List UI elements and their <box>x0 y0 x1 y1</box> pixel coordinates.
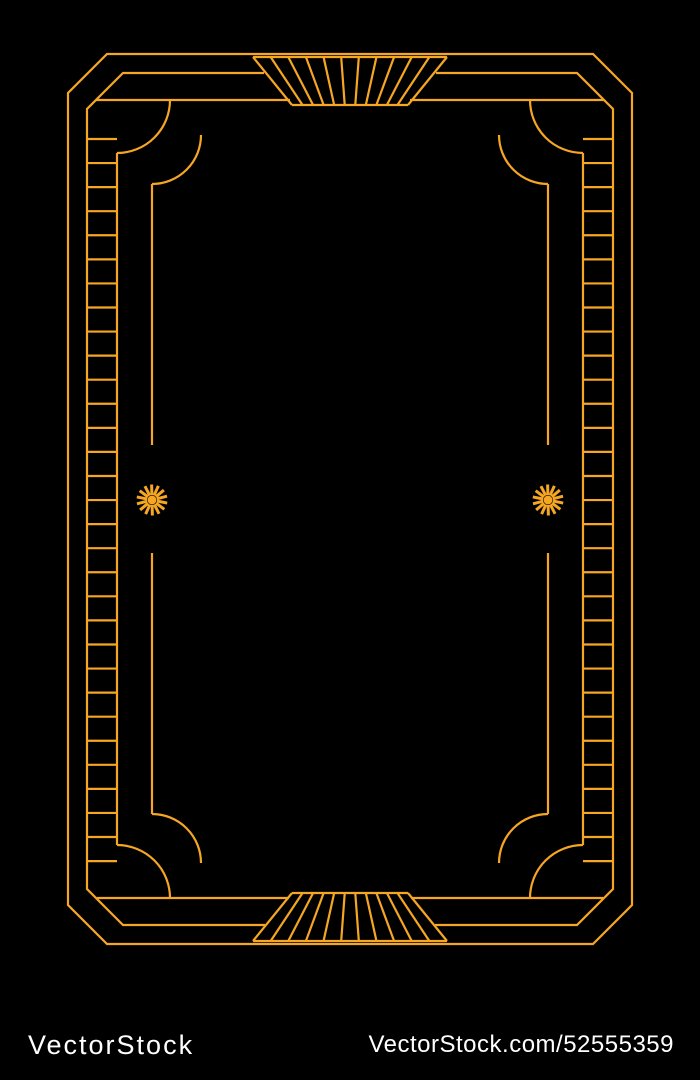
watermark-url: VectorStock.com/52555359 <box>368 1031 674 1059</box>
art-deco-frame-graphic <box>0 0 700 1010</box>
vertical-drop-lines <box>152 184 548 814</box>
starburst-icon <box>137 485 167 516</box>
second-octagon-frame <box>87 73 613 925</box>
corner-arc-ornaments <box>152 135 548 863</box>
watermark-bar: VectorStock VectorStock.com/52555359 <box>0 1010 700 1080</box>
stock-image-preview: VectorStock VectorStock.com/52555359 <box>0 0 700 1080</box>
starburst-icon <box>533 485 563 516</box>
sunburst-fan-icon <box>253 893 447 941</box>
watermark-brand: VectorStock <box>28 1030 194 1061</box>
inner-frame-with-arcs <box>96 100 604 898</box>
ladder-hatch-pattern <box>87 139 613 861</box>
sunburst-fan-icon <box>253 57 447 105</box>
